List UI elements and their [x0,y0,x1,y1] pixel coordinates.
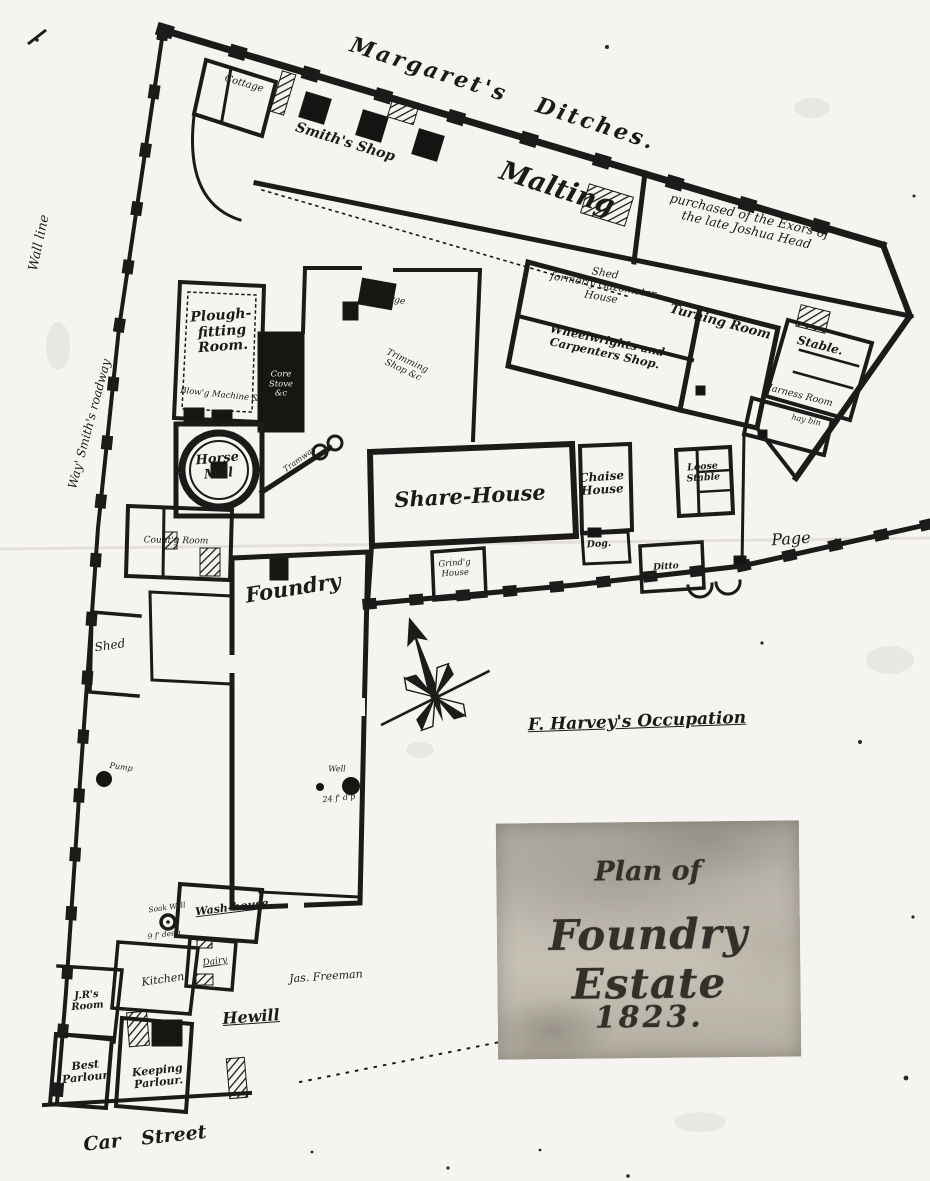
grate-hatch [196,974,213,985]
label-countg-room: Count'g Room [144,535,209,546]
street-front-wall [44,1093,250,1105]
door-blob [734,556,746,564]
title-cartouche: Plan of Foundry Estate 1823. [496,820,801,1059]
title-estate-name: Foundry Estate [497,908,801,1009]
left-boundary-ticks [57,32,163,1103]
left-boundary-wall [57,32,163,1103]
label-plough-fitting-room: Plough- fitting Room. [190,306,254,357]
door-blob [588,528,601,537]
label-well: Well [328,766,345,775]
forge-icon [343,302,358,320]
washhouse-foundry-link [260,892,360,897]
label-chaise-house: Chaise House [579,469,626,499]
title-year: 1823. [498,998,801,1036]
label-horse-mill: Horse Mill [195,451,241,484]
foundry-annex [150,592,232,684]
harness-yard-link [742,434,744,566]
door-gap [358,698,365,716]
smiths-partition [634,173,645,262]
machine-icon [184,408,204,422]
label-loose-stable: Loose Stable [685,461,720,485]
staircase-hatch [127,1011,150,1047]
soak-well-dot [166,920,170,924]
door-gap [288,902,304,909]
door-blob [696,386,705,395]
forge-hearth-icon [356,110,388,142]
door-gap [229,655,235,673]
stairs-hatch [200,548,220,576]
stable-stalls [794,350,858,388]
label-best-parlour: Best Parlour. [60,1057,111,1087]
cottage-garden-arc [192,116,240,220]
label-core-stove: Core Stove &c [269,371,293,400]
scanned-plan-page: { "title": { "line1": "Plan of", "line2"… [0,0,930,1181]
stairs-hatch [387,96,419,125]
label-keeping-parlour: Keeping Parlour. [131,1062,184,1092]
label-ditto: Ditto [653,561,679,573]
label-dog: Dog. [586,539,611,551]
title-plan-of: Plan of [496,854,799,888]
steps-hatch [226,1057,247,1098]
gate-arc [716,581,740,594]
pump-icon [96,771,112,787]
door-blob [758,430,767,439]
forge-hearth-icon [299,92,331,124]
shop-west-wall [303,268,305,332]
cottage-outline [194,60,276,136]
compass-rose-icon [352,599,502,748]
furnace-block [152,1020,182,1046]
plan-stage: Margaret's Ditches.CottageSmith's ShopMa… [0,0,930,1181]
label-page: Page [771,529,811,550]
shop-north-wall [306,268,480,270]
label-jrs-room: J.R's Room [70,988,104,1013]
forge-hearth-icon [412,129,444,161]
label-grindg-house: Grind'g House [438,558,472,579]
shop-east-wall [473,270,480,440]
well-dot [316,783,324,791]
tramway-wheel [328,436,342,450]
right-end-wall [883,245,910,316]
